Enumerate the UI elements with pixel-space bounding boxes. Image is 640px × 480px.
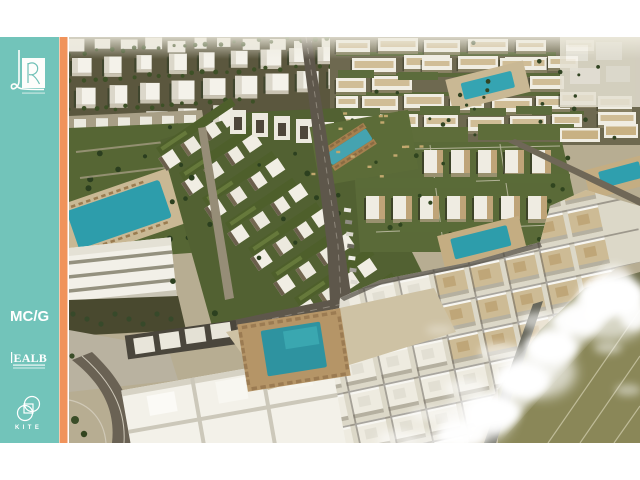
svg-text:MC/G: MC/G	[10, 308, 49, 325]
svg-text:KITE: KITE	[15, 425, 42, 431]
svg-text:EALB: EALB	[14, 351, 47, 365]
